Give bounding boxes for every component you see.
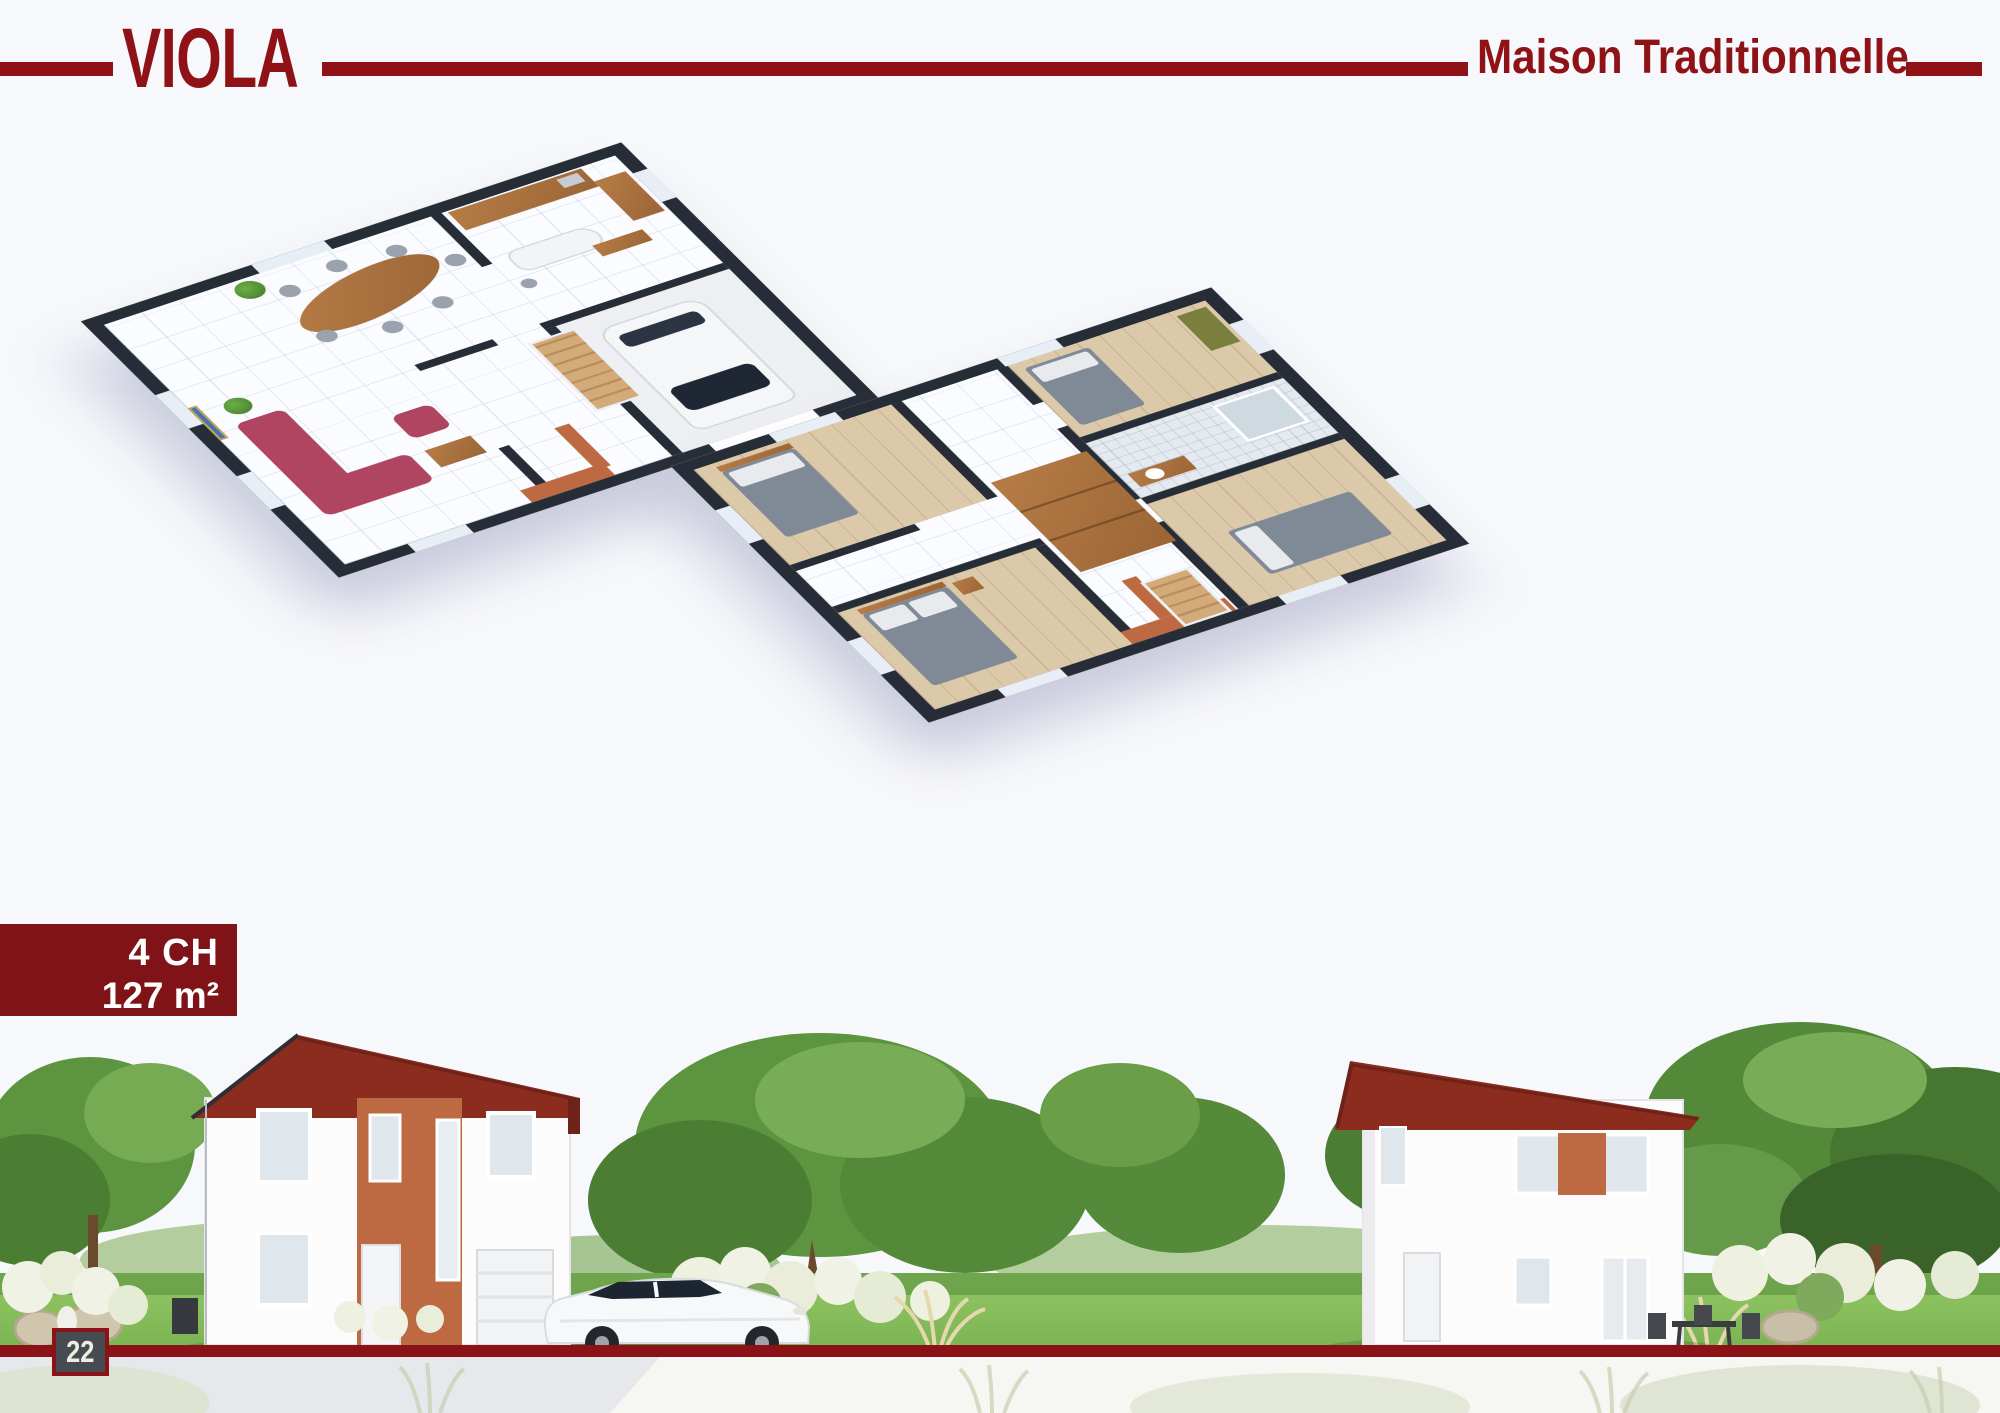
island-wood-side [592,229,653,256]
dining-chair [441,252,471,269]
dining-chair [322,257,352,274]
window [258,1233,310,1305]
brochure-page: VIOLA Maison Traditionnelle [0,0,2000,1413]
collection-subtitle: Maison Traditionnelle [1477,34,1909,82]
coffee-table [424,436,487,468]
bar-stool [517,277,540,290]
window [488,1113,534,1177]
tall-window [437,1120,459,1280]
plant [218,395,257,418]
dining-chair [275,283,305,300]
armchair-illustration [390,404,452,440]
potted-plant [229,278,272,302]
hall-wall-a [414,339,498,371]
spec-badge: 4 CH 127 m² [0,924,237,1016]
kitchen-island [503,224,611,273]
window [251,241,332,273]
floorplan-upper-floorplate [671,287,1469,722]
window [258,1110,310,1182]
orange-shutter-panel [1558,1133,1606,1195]
window [1515,1257,1551,1305]
header-rule-left [0,62,113,76]
dining-chair [378,318,408,335]
page-number: 22 [52,1328,109,1376]
floorplan-upper [700,215,1440,795]
bedroom-count: 4 CH [0,932,219,975]
footer-band [0,1345,2000,1357]
window [370,1115,400,1181]
window [1516,1135,1560,1193]
window [237,471,285,509]
window [1380,1127,1406,1185]
window [407,525,474,553]
header-rule-right [1906,62,1982,76]
page-number-value: 22 [66,1334,94,1370]
dining-chair [428,294,458,311]
terracotta-pillar [554,424,611,471]
window [1604,1135,1648,1193]
rear-door [1404,1253,1440,1341]
faded-foreground [0,1357,2000,1413]
